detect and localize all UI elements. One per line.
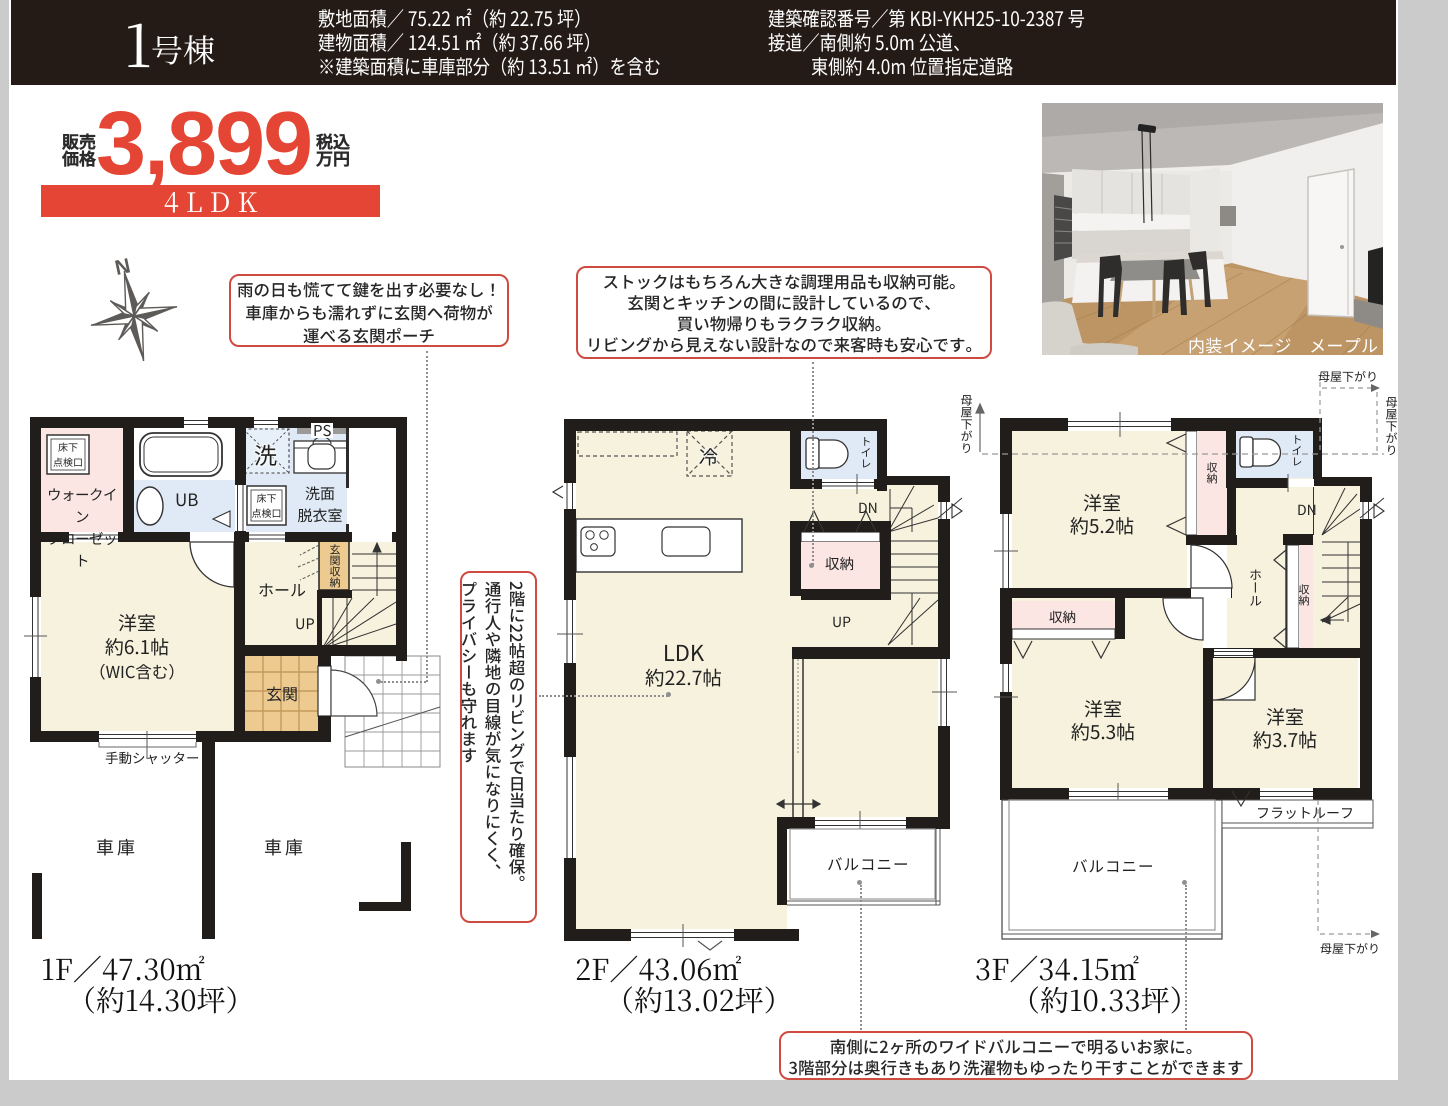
svg-text:N: N xyxy=(113,254,133,280)
